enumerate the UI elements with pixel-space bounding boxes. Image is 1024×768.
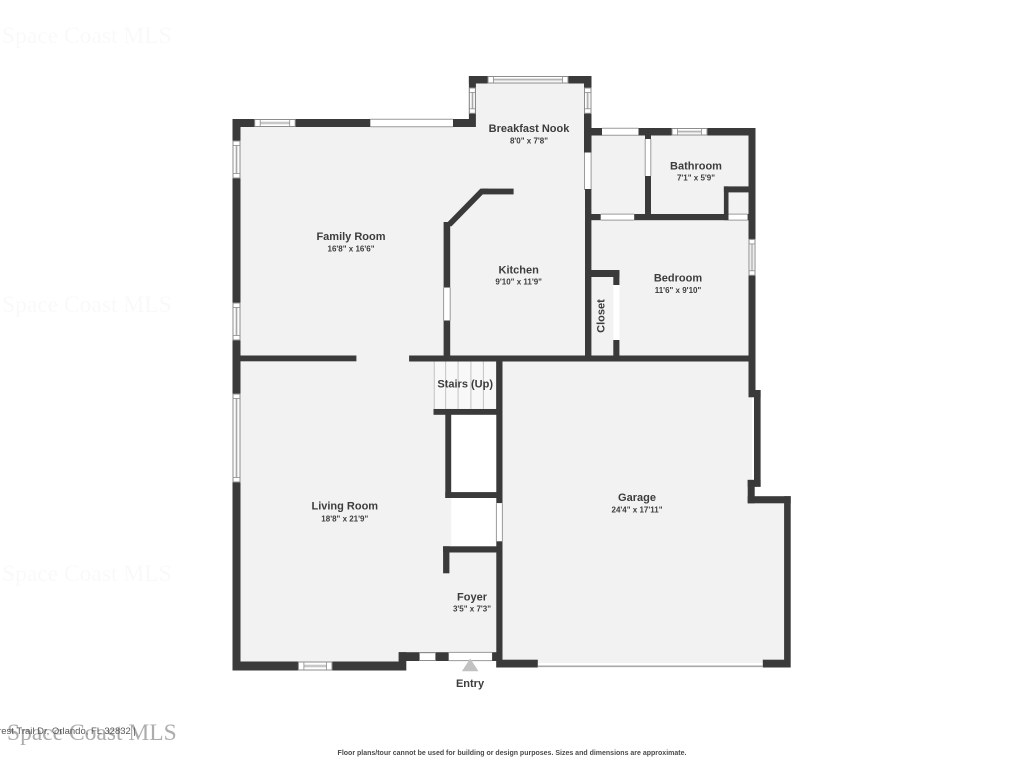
svg-text:3'5" x 7'3": 3'5" x 7'3" xyxy=(453,605,491,614)
svg-text:Bedroom: Bedroom xyxy=(654,272,703,284)
svg-text:Forest Trail Dr, Orlando, FL 3: Forest Trail Dr, Orlando, FL 32832 | xyxy=(0,726,136,737)
svg-text:16'8" x 16'6": 16'8" x 16'6" xyxy=(328,244,375,253)
svg-text:Closet: Closet xyxy=(595,299,607,333)
svg-text:Space Coast MLS: Space Coast MLS xyxy=(2,292,172,318)
svg-text:Garage: Garage xyxy=(618,492,656,504)
svg-text:Breakfast Nook: Breakfast Nook xyxy=(489,123,571,135)
svg-text:Living Room: Living Room xyxy=(311,500,378,512)
svg-text:8'0" x 7'8": 8'0" x 7'8" xyxy=(510,136,548,145)
svg-text:Floor plans/tour cannot be use: Floor plans/tour cannot be used for buil… xyxy=(338,750,687,757)
svg-text:11'6" x 9'10": 11'6" x 9'10" xyxy=(655,286,702,295)
svg-text:Stairs (Up): Stairs (Up) xyxy=(437,379,493,391)
svg-text:Foyer: Foyer xyxy=(457,592,488,604)
svg-text:18'8" x 21'9": 18'8" x 21'9" xyxy=(321,515,368,524)
svg-text:Space Coast MLS: Space Coast MLS xyxy=(2,561,172,587)
svg-text:Entry: Entry xyxy=(456,678,485,690)
svg-text:Kitchen: Kitchen xyxy=(499,264,540,276)
svg-text:9'10" x 11'9": 9'10" x 11'9" xyxy=(495,278,542,287)
svg-text:Family Room: Family Room xyxy=(316,231,385,243)
svg-text:24'4" x 17'11": 24'4" x 17'11" xyxy=(612,505,663,514)
svg-text:Space Coast MLS: Space Coast MLS xyxy=(2,23,172,49)
svg-text:7'1" x 5'9": 7'1" x 5'9" xyxy=(677,174,715,183)
svg-text:Bathroom: Bathroom xyxy=(670,161,722,173)
